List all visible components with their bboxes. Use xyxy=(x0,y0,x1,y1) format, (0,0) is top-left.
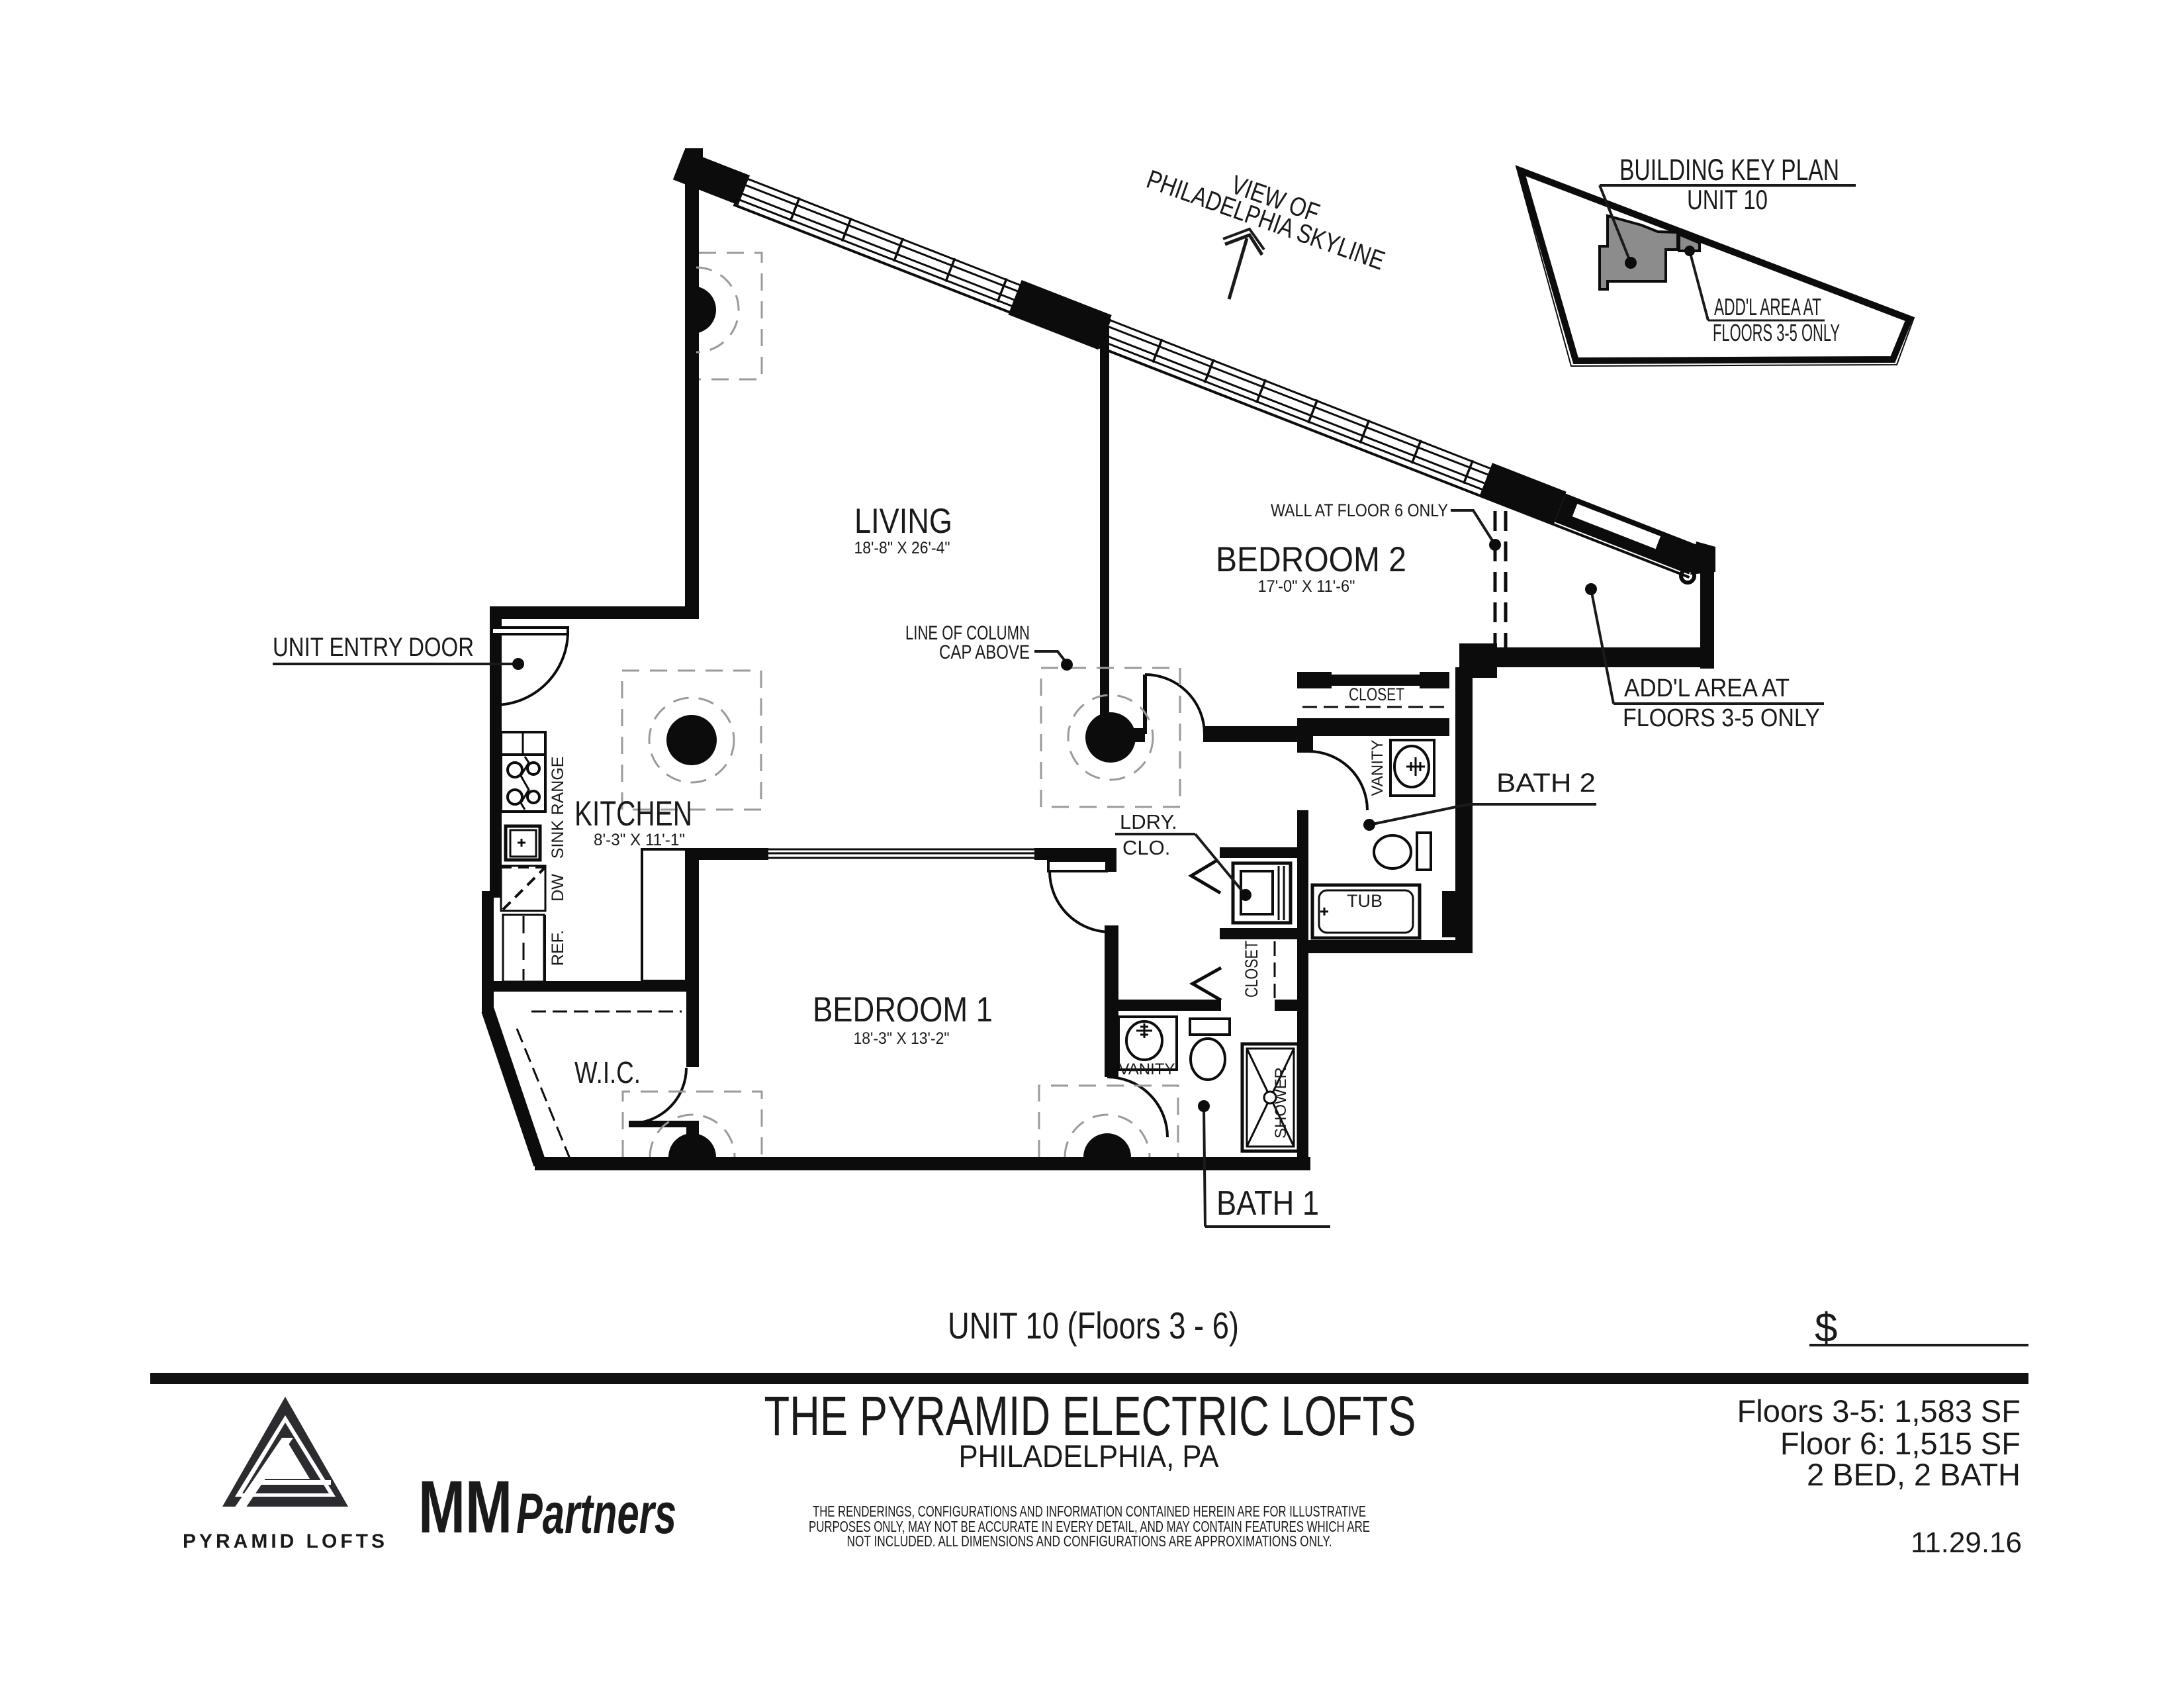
svg-text:Partners: Partners xyxy=(516,1482,676,1546)
svg-text:CLOSET: CLOSET xyxy=(1349,684,1404,704)
svg-text:18'-8" X 26'-4": 18'-8" X 26'-4" xyxy=(854,539,950,557)
svg-text:UNIT 10 (Floors 3 - 6): UNIT 10 (Floors 3 - 6) xyxy=(948,1305,1239,1347)
svg-text:SINK: SINK xyxy=(549,820,567,859)
svg-text:Floor 6: 1,515 SF: Floor 6: 1,515 SF xyxy=(1780,1426,2021,1461)
svg-text:REF.: REF. xyxy=(549,930,567,966)
svg-text:KITCHEN: KITCHEN xyxy=(574,794,692,833)
svg-text:LDRY.: LDRY. xyxy=(1120,810,1177,833)
svg-text:CLOSET: CLOSET xyxy=(1242,941,1261,998)
svg-text:BEDROOM 2: BEDROOM 2 xyxy=(1216,540,1406,579)
svg-text:WALL AT FLOOR 6 ONLY: WALL AT FLOOR 6 ONLY xyxy=(1271,500,1448,520)
svg-text:BEDROOM 1: BEDROOM 1 xyxy=(813,990,993,1029)
svg-text:CAP ABOVE: CAP ABOVE xyxy=(939,641,1030,663)
svg-text:W.I.C.: W.I.C. xyxy=(574,1055,641,1090)
svg-text:TUB: TUB xyxy=(1347,891,1383,911)
svg-text:LIVING: LIVING xyxy=(854,502,952,541)
svg-text:BUILDING KEY PLAN: BUILDING KEY PLAN xyxy=(1619,153,1839,187)
svg-text:17'-0" X 11'-6": 17'-0" X 11'-6" xyxy=(1258,577,1355,596)
svg-text:ADD'L AREA AT: ADD'L AREA AT xyxy=(1714,293,1821,320)
svg-text:RANGE: RANGE xyxy=(549,757,567,816)
svg-text:MM: MM xyxy=(418,1466,512,1548)
svg-text:2 BED, 2 BATH: 2 BED, 2 BATH xyxy=(1807,1457,2021,1492)
svg-text:UNIT 10: UNIT 10 xyxy=(1687,184,1768,215)
svg-text:PYRAMID LOFTS: PYRAMID LOFTS xyxy=(183,1530,388,1552)
svg-text:VANITY: VANITY xyxy=(1119,1060,1175,1078)
svg-text:PHILADELPHIA, PA: PHILADELPHIA, PA xyxy=(959,1438,1220,1474)
svg-text:8'-3" X 11'-1": 8'-3" X 11'-1" xyxy=(594,831,685,849)
svg-text:NOT INCLUDED. ALL DIMENSIONS: NOT INCLUDED. ALL DIMENSIONS AND CONFIGU… xyxy=(847,1532,1332,1550)
svg-text:THE PYRAMID ELECTRIC LOFTS: THE PYRAMID ELECTRIC LOFTS xyxy=(764,1385,1416,1447)
svg-text:Floors 3-5: 1,583 SF: Floors 3-5: 1,583 SF xyxy=(1737,1393,2021,1429)
svg-text:FLOORS 3-5 ONLY: FLOORS 3-5 ONLY xyxy=(1623,704,1820,732)
svg-text:SHOWER: SHOWER xyxy=(1272,1067,1290,1139)
svg-text:UNIT ENTRY DOOR: UNIT ENTRY DOOR xyxy=(273,633,474,662)
svg-text:BATH 1: BATH 1 xyxy=(1216,1184,1319,1223)
svg-text:VANITY: VANITY xyxy=(1369,740,1387,796)
svg-text:18'-3" X 13'-2": 18'-3" X 13'-2" xyxy=(854,1029,950,1048)
svg-text:ADD'L AREA AT: ADD'L AREA AT xyxy=(1624,675,1790,702)
svg-text:11.29.16: 11.29.16 xyxy=(1911,1526,2022,1559)
svg-text:DW: DW xyxy=(549,874,567,902)
svg-text:FLOORS 3-5 ONLY: FLOORS 3-5 ONLY xyxy=(1713,319,1840,346)
svg-text:CLO.: CLO. xyxy=(1122,836,1170,859)
svg-text:BATH 2: BATH 2 xyxy=(1496,769,1596,798)
